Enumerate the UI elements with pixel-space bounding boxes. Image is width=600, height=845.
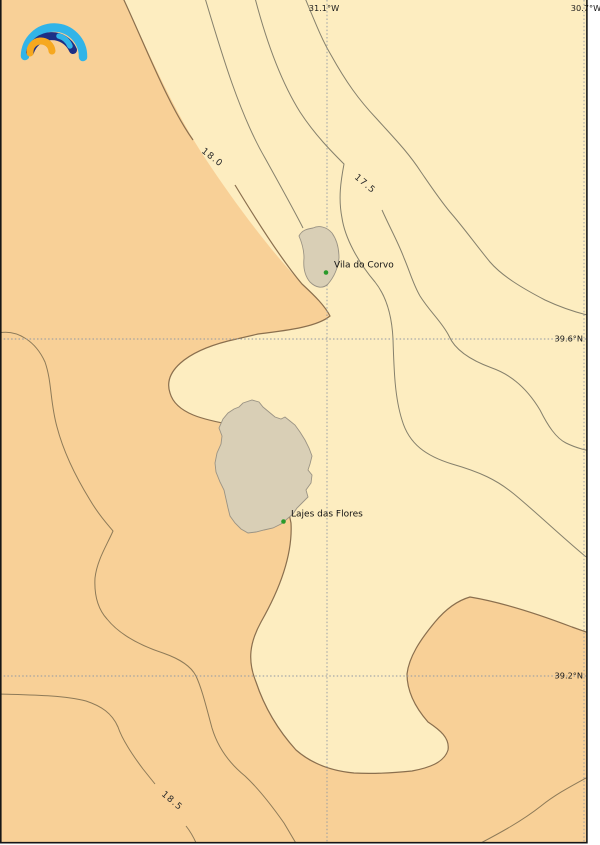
lon-label-30.7W: 30.7°W <box>571 3 600 13</box>
map-canvas: Vila do Corvo Lajes das Flores 18.0 17.5… <box>0 0 600 845</box>
place-marker-lajes-das-flores[interactable] <box>281 519 286 524</box>
lat-label-39.6N: 39.6°N <box>555 334 583 344</box>
lat-label-39.2N: 39.2°N <box>555 671 583 681</box>
map-viewport[interactable]: Vila do Corvo Lajes das Flores 18.0 17.5… <box>0 0 600 845</box>
place-label-lajes-das-flores: Lajes das Flores <box>291 510 363 520</box>
lon-label-31.1W: 31.1°W <box>309 3 339 13</box>
place-marker-vila-do-corvo[interactable] <box>324 270 329 275</box>
place-label-vila-do-corvo: Vila do Corvo <box>334 261 394 271</box>
